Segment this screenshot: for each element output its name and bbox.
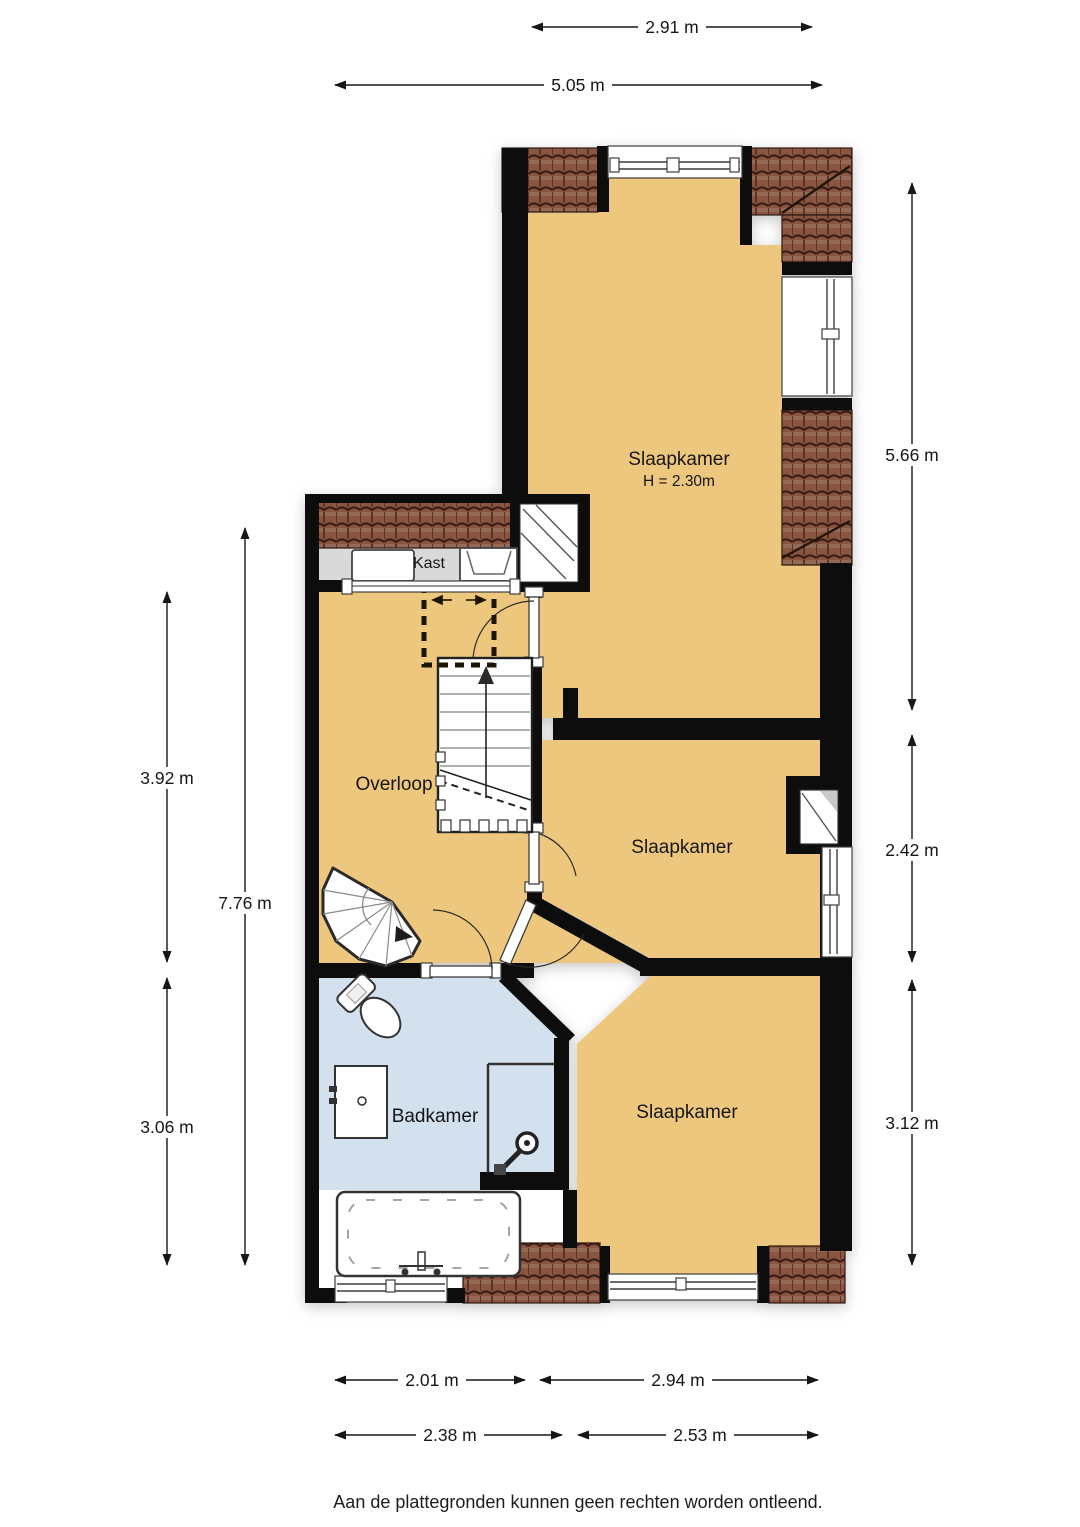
- dim-left-inner-bottom: 3.06 m: [140, 1117, 194, 1137]
- appliance-unit: [460, 548, 517, 581]
- window-right-middle: [822, 847, 852, 957]
- dim-top-outer: 5.05 m: [551, 75, 605, 95]
- window-bedroom-bottom: [608, 1274, 758, 1300]
- appliance-washer: [352, 550, 414, 581]
- chimney-niche: [800, 790, 838, 844]
- roof-left-strip: [307, 500, 517, 548]
- bedroom-top-height: H = 2.30m: [643, 473, 715, 490]
- window-top: [608, 146, 742, 178]
- bedroom-middle-label: Slaapkamer: [631, 837, 733, 858]
- dim-bottom-outer-left: 2.38 m: [423, 1425, 477, 1445]
- disclaimer-text: Aan de plattegronden kunnen geen rechten…: [333, 1492, 822, 1512]
- bathroom-label: Badkamer: [392, 1106, 479, 1127]
- roof-right-upper: [782, 215, 852, 262]
- dim-top-inner: 2.91 m: [645, 17, 699, 37]
- bedroom-top-label: Slaapkamer: [628, 449, 730, 470]
- staircase-straight: [436, 658, 532, 832]
- floorplan-canvas: Slaapkamer H = 2.30m Kast Overloop Slaap…: [0, 0, 1080, 1527]
- bedroom-top-floor: [528, 160, 820, 718]
- dim-left-inner-top: 3.92 m: [140, 768, 194, 788]
- roof-right-mid: [782, 410, 852, 565]
- dim-left-outer: 7.76 m: [218, 893, 272, 913]
- dim-right-top: 5.66 m: [885, 445, 939, 465]
- building: Slaapkamer H = 2.30m Kast Overloop Slaap…: [305, 146, 852, 1303]
- closet-label: Kast: [413, 555, 446, 572]
- dim-bottom-inner-right: 2.94 m: [651, 1370, 705, 1390]
- window-right-upper: [782, 277, 852, 396]
- window-bathroom-bottom: [335, 1276, 447, 1302]
- bathtub: [337, 1192, 520, 1276]
- roof-top-right: [748, 148, 852, 215]
- dim-bottom-inner-left: 2.01 m: [405, 1370, 459, 1390]
- floorplan-page: Slaapkamer H = 2.30m Kast Overloop Slaap…: [0, 0, 1080, 1527]
- washbasin: [329, 1066, 387, 1138]
- shaft-box: [520, 504, 578, 582]
- dim-bottom-outer-right: 2.53 m: [673, 1425, 727, 1445]
- landing-label: Overloop: [355, 774, 432, 795]
- roof-bottom-right: [769, 1246, 845, 1303]
- dim-right-bottom: 3.12 m: [885, 1113, 939, 1133]
- bedroom-bottom-floor: [577, 972, 820, 1292]
- bedroom-bottom-label: Slaapkamer: [636, 1102, 738, 1123]
- dim-right-middle: 2.42 m: [885, 840, 939, 860]
